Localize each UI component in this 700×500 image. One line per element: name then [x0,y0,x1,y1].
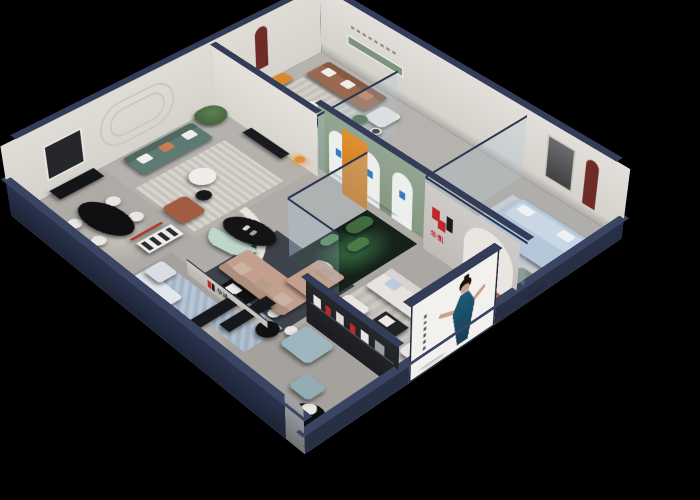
table-vase [242,225,251,231]
building-plan: 华凯 华凯 [11,52,621,454]
maroon-arch-niche [582,157,600,210]
arch-logo-mark [336,148,342,159]
table-vase [249,230,258,236]
product-box [336,311,344,326]
product-box [313,294,321,309]
showroom-render: 华凯 华凯 [0,0,700,500]
product-box [361,329,369,344]
arch-logo-mark [399,190,405,201]
arch-logo-mark [367,169,373,180]
poster-woman-dress [451,285,476,349]
logo-block-red [438,219,446,234]
maroon-arch-niche [255,24,269,71]
ledge-logo-dark [212,283,215,292]
wall-shelf-niche [43,128,85,182]
logo-block-dark [446,216,453,234]
poster-text-column [423,314,427,351]
